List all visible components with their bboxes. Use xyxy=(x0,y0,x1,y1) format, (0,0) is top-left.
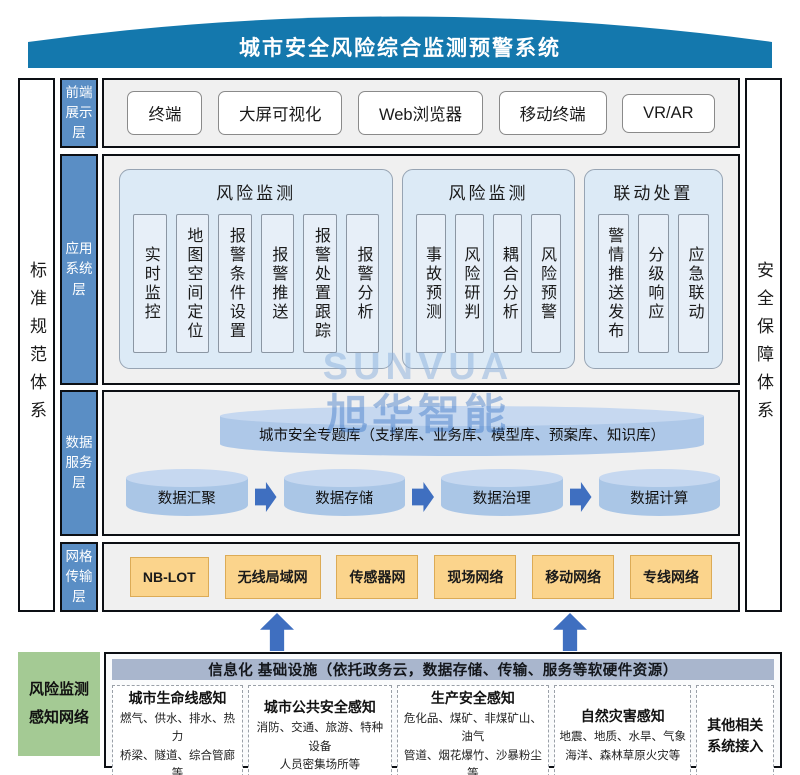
app-function-label: 应急联动 xyxy=(681,246,705,322)
app-function-label: 风险研判 xyxy=(457,246,481,322)
perception-boxes: 城市生命线感知 燃气、供水、排水、热力 桥梁、隧道、综合管廊等 城市公共安全感知… xyxy=(112,685,774,775)
group-risk-monitoring-2: 风险监测 事故预测 风险研判 耦合分析 风险预警 xyxy=(402,169,574,369)
up-arrow-icon xyxy=(260,613,294,651)
layer-tab-data: 数据 服务 层 xyxy=(60,390,98,536)
system-title: 城市安全风险综合监测预警系统 xyxy=(28,32,772,62)
app-function: 报警条件设置 xyxy=(218,214,252,353)
app-function-label: 报警推送 xyxy=(265,246,289,322)
app-function-label: 风险预警 xyxy=(534,246,558,322)
frontend-node-web-browser: Web浏览器 xyxy=(358,91,483,135)
perception-network-box: 风险监测 感知网络 xyxy=(18,652,100,756)
data-flow-label: 数据汇聚 xyxy=(158,487,216,508)
security-assurance-bar: 安全保障体系 xyxy=(745,78,782,612)
frontend-node-bigscreen: 大屏可视化 xyxy=(218,91,343,135)
data-flow-cylinder-aggregation: 数据汇聚 xyxy=(126,478,248,516)
application-layer-row: 风险监测 实时监控 地图空间定位 报警条件设置 报警推送 报警处置跟踪 报警分析… xyxy=(102,154,740,385)
perception-box-lifeline: 城市生命线感知 燃气、供水、排水、热力 桥梁、隧道、综合管廊等 xyxy=(112,685,243,775)
app-function: 报警分析 xyxy=(346,214,380,353)
group-title: 风险监测 xyxy=(403,170,573,212)
app-function-label: 报警处置跟踪 xyxy=(308,227,332,341)
layer-tab-network-label: 网格 传输 层 xyxy=(66,547,93,608)
app-function-label: 报警分析 xyxy=(351,246,375,322)
network-layer-row: NB-LOT 无线局域网 传感器网 现场网络 移动网络 专线网络 xyxy=(102,542,740,612)
standards-system-bar: 标准规范体系 xyxy=(18,78,55,612)
app-function-label: 事故预测 xyxy=(419,246,443,322)
group-title: 风险监测 xyxy=(120,170,392,212)
network-node-sensor: 传感器网 xyxy=(336,555,418,599)
app-function: 风险研判 xyxy=(455,214,484,353)
group-columns: 实时监控 地图空间定位 报警条件设置 报警推送 报警处置跟踪 报警分析 xyxy=(120,212,392,368)
data-flow-label: 数据计算 xyxy=(630,487,688,508)
infrastructure-header: 信息化 基础设施（依托政务云，数据存储、传输、服务等软硬件资源） xyxy=(112,659,774,680)
right-arrow-icon xyxy=(412,482,434,512)
layer-tab-frontend-label: 前端 展示 层 xyxy=(66,83,93,144)
app-function: 地图空间定位 xyxy=(176,214,210,353)
frontend-node-mobile: 移动终端 xyxy=(499,91,607,135)
architecture-diagram: 城市安全风险综合监测预警系统 标准规范体系 安全保障体系 前端 展示 层 应用 … xyxy=(0,0,800,775)
right-arrow-icon xyxy=(570,482,592,512)
data-layer-row: 城市安全专题库（支撑库、业务库、模型库、预案库、知识库） 数据汇聚 数据存储 数… xyxy=(102,390,740,536)
layer-tab-frontend: 前端 展示 层 xyxy=(60,78,98,148)
perception-box-title: 自然灾害感知 xyxy=(581,706,665,727)
system-title-banner: 城市安全风险综合监测预警系统 xyxy=(28,4,772,68)
group-columns: 警情推送发布 分级响应 应急联动 xyxy=(585,212,722,368)
data-flow-label: 数据治理 xyxy=(473,487,531,508)
app-function-label: 耦合分析 xyxy=(496,246,520,322)
layer-tab-network: 网格 传输 层 xyxy=(60,542,98,612)
perception-box-production-safety: 生产安全感知 危化品、煤矿、非煤矿山、油气 管道、烟花爆竹、沙暴粉尘等 xyxy=(397,685,549,775)
right-arrow-icon xyxy=(255,482,277,512)
perception-box-title: 其他相关 系统接入 xyxy=(707,715,763,757)
data-flow-cylinder-storage: 数据存储 xyxy=(284,478,406,516)
perception-box-title: 生产安全感知 xyxy=(431,688,515,709)
app-function: 风险预警 xyxy=(531,214,560,353)
app-function: 应急联动 xyxy=(678,214,709,353)
perception-box-desc: 地震、地质、水旱、气象 海洋、森林草原火灾等 xyxy=(560,728,687,765)
group-risk-monitoring-1: 风险监测 实时监控 地图空间定位 报警条件设置 报警推送 报警处置跟踪 报警分析 xyxy=(119,169,393,369)
app-function: 报警处置跟踪 xyxy=(303,214,337,353)
app-function-label: 报警条件设置 xyxy=(223,227,247,341)
data-flow: 数据汇聚 数据存储 数据治理 数据计算 xyxy=(126,478,720,516)
app-function: 耦合分析 xyxy=(493,214,522,353)
perception-box-public-safety: 城市公共安全感知 消防、交通、旅游、特种设备 人员密集场所等 xyxy=(248,685,392,775)
infrastructure-panel: 信息化 基础设施（依托政务云，数据存储、传输、服务等软硬件资源） 城市生命线感知… xyxy=(104,652,782,768)
perception-box-other-systems: 其他相关 系统接入 xyxy=(696,685,774,775)
layer-tab-application: 应用 系统 层 xyxy=(60,154,98,385)
frontend-node-vrar: VR/AR xyxy=(622,94,714,133)
standards-system-label: 标准规范体系 xyxy=(24,261,49,429)
app-function: 警情推送发布 xyxy=(598,214,629,353)
app-function-label: 分级响应 xyxy=(641,246,665,322)
data-flow-cylinder-computing: 数据计算 xyxy=(599,478,721,516)
app-function: 事故预测 xyxy=(416,214,445,353)
network-node-field: 现场网络 xyxy=(434,555,516,599)
network-node-wlan: 无线局域网 xyxy=(225,555,321,599)
layer-tab-application-label: 应用 系统 层 xyxy=(66,239,93,300)
frontend-node-terminal: 终端 xyxy=(127,91,202,135)
frontend-layer-row: 终端 大屏可视化 Web浏览器 移动终端 VR/AR xyxy=(102,78,740,148)
network-node-dedicated: 专线网络 xyxy=(630,555,712,599)
perception-box-desc: 燃气、供水、排水、热力 桥梁、隧道、综合管廊等 xyxy=(116,710,239,775)
theme-database-cylinder: 城市安全专题库（支撑库、业务库、模型库、预案库、知识库） xyxy=(220,416,704,456)
app-function: 分级响应 xyxy=(638,214,669,353)
group-title: 联动处置 xyxy=(585,170,722,212)
perception-box-desc: 危化品、煤矿、非煤矿山、油气 管道、烟花爆竹、沙暴粉尘等 xyxy=(401,710,545,775)
app-function: 报警推送 xyxy=(261,214,295,353)
perception-box-title: 城市公共安全感知 xyxy=(264,697,376,718)
perception-box-title: 城市生命线感知 xyxy=(129,688,227,709)
layer-tab-data-label: 数据 服务 层 xyxy=(66,433,93,494)
data-flow-cylinder-governance: 数据治理 xyxy=(441,478,563,516)
group-columns: 事故预测 风险研判 耦合分析 风险预警 xyxy=(403,212,573,368)
group-linked-disposal: 联动处置 警情推送发布 分级响应 应急联动 xyxy=(584,169,723,369)
perception-box-desc: 消防、交通、旅游、特种设备 人员密集场所等 xyxy=(252,719,388,774)
app-function-label: 地图空间定位 xyxy=(180,227,204,341)
up-arrow-icon xyxy=(553,613,587,651)
app-function-label: 警情推送发布 xyxy=(601,227,625,341)
data-flow-label: 数据存储 xyxy=(315,487,373,508)
security-assurance-label: 安全保障体系 xyxy=(751,261,776,429)
perception-box-natural-disaster: 自然灾害感知 地震、地质、水旱、气象 海洋、森林草原火灾等 xyxy=(554,685,691,775)
theme-database-label: 城市安全专题库（支撑库、业务库、模型库、预案库、知识库） xyxy=(220,424,704,445)
network-node-nblot: NB-LOT xyxy=(130,557,209,597)
app-function: 实时监控 xyxy=(133,214,167,353)
perception-network-label: 风险监测 感知网络 xyxy=(29,676,89,733)
network-node-mobile: 移动网络 xyxy=(532,555,614,599)
app-function-label: 实时监控 xyxy=(138,246,162,322)
